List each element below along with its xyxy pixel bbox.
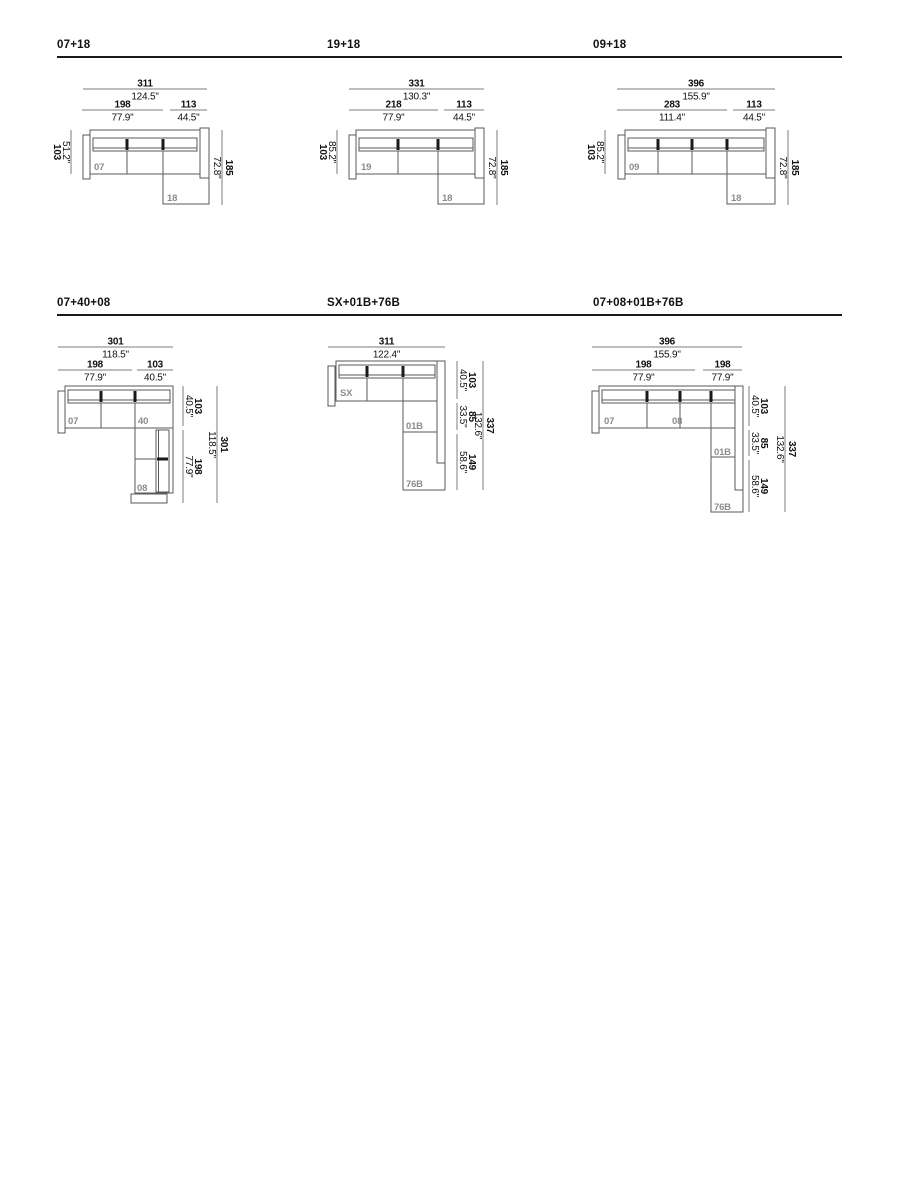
cushion-junction-mark bbox=[402, 366, 405, 377]
dim-cm-value: 311 bbox=[137, 79, 153, 90]
right-armrest bbox=[766, 128, 775, 178]
dim-inch-value: 33.5" bbox=[457, 405, 468, 428]
bottom-armrest bbox=[131, 494, 167, 503]
back-cushion-band bbox=[68, 390, 170, 403]
dim-inch-value: 118.5" bbox=[206, 431, 217, 458]
dim-inch-value: 40.5" bbox=[457, 369, 468, 392]
module-label: 40 bbox=[138, 416, 148, 427]
cushion-junction-mark bbox=[134, 391, 137, 402]
module-label: 18 bbox=[167, 193, 177, 204]
module-label: 76B bbox=[406, 479, 423, 490]
back-cushion-band bbox=[339, 365, 435, 378]
dim-inch-value: 77.9" bbox=[183, 455, 194, 478]
dim-inch-value: 77.9" bbox=[84, 373, 107, 384]
back-cushion-band bbox=[93, 138, 197, 151]
cushion-junction-mark bbox=[691, 139, 694, 150]
module-label: 18 bbox=[731, 193, 741, 204]
dim-inch-value: 72.8" bbox=[777, 156, 788, 179]
side-backrest-strip bbox=[437, 361, 445, 463]
back-cushion-band bbox=[359, 138, 473, 151]
sofa-body bbox=[356, 130, 475, 174]
cushion-junction-mark bbox=[726, 139, 729, 150]
dim-inch-value: 132.6" bbox=[774, 435, 785, 463]
cushion-junction-mark bbox=[437, 139, 440, 150]
module-label: 07 bbox=[604, 416, 614, 427]
dim-inch-value: 77.9" bbox=[382, 113, 405, 124]
right-armrest bbox=[475, 128, 484, 178]
dim-inch-value: 85.2" bbox=[594, 141, 605, 164]
module-label: 07 bbox=[94, 162, 104, 173]
sofa-diagrams-canvas: 311124.5"19877.9"11344.5"10351.2"18572.8… bbox=[0, 0, 899, 1200]
dim-inch-value: 44.5" bbox=[743, 113, 766, 124]
dim-inch-value: 58.6" bbox=[457, 451, 468, 474]
dim-cm-value: 331 bbox=[408, 79, 425, 90]
dim-cm-value: 301 bbox=[107, 337, 124, 348]
right-armrest bbox=[200, 128, 209, 178]
dim-cm-value: 198 bbox=[114, 100, 131, 111]
dim-cm-value: 113 bbox=[746, 100, 762, 111]
dim-inch-value: 111.4" bbox=[659, 113, 686, 124]
dim-inch-value: 122.4" bbox=[373, 350, 401, 361]
left-armrest bbox=[592, 391, 599, 433]
dim-inch-value: 44.5" bbox=[177, 113, 200, 124]
back-cushion-band bbox=[628, 138, 764, 151]
cushion-junction-mark bbox=[710, 391, 713, 402]
dim-inch-value: 132.6" bbox=[472, 412, 483, 440]
side-backrest-strip bbox=[735, 386, 743, 490]
dim-inch-value: 72.8" bbox=[486, 156, 497, 179]
dim-inch-value: 33.5" bbox=[749, 432, 760, 455]
dim-cm-value: 301 bbox=[218, 436, 229, 453]
dim-cm-value: 113 bbox=[456, 100, 472, 111]
module-label: 76B bbox=[714, 502, 731, 513]
module-label: 09 bbox=[629, 162, 639, 173]
cushion-junction-mark bbox=[126, 139, 129, 150]
cushion-junction-mark bbox=[157, 458, 168, 461]
dim-inch-value: 155.9" bbox=[653, 350, 681, 361]
dim-inch-value: 155.9" bbox=[682, 92, 710, 103]
dim-inch-value: 124.5" bbox=[131, 92, 159, 103]
cushion-junction-mark bbox=[366, 366, 369, 377]
dim-inch-value: 85.2" bbox=[326, 141, 337, 164]
dim-cm-value: 103 bbox=[147, 360, 164, 371]
cushion-junction-mark bbox=[646, 391, 649, 402]
sofa-body bbox=[625, 130, 766, 174]
dim-cm-value: 198 bbox=[635, 360, 652, 371]
dim-cm-value: 218 bbox=[385, 100, 402, 111]
cushion-junction-mark bbox=[162, 139, 165, 150]
cushion-junction-mark bbox=[397, 139, 400, 150]
dim-inch-value: 118.5" bbox=[102, 350, 129, 361]
dim-cm-value: 396 bbox=[659, 337, 676, 348]
module-label: 01B bbox=[714, 447, 731, 458]
dim-cm-value: 337 bbox=[786, 441, 797, 458]
cushion-junction-mark bbox=[657, 139, 660, 150]
dim-inch-value: 77.9" bbox=[111, 113, 134, 124]
dim-inch-value: 72.8" bbox=[211, 156, 222, 179]
dim-cm-value: 185 bbox=[223, 159, 234, 176]
back-cushion-band bbox=[602, 390, 735, 403]
cushion-junction-mark bbox=[100, 391, 103, 402]
dim-inch-value: 77.9" bbox=[711, 373, 734, 384]
dim-cm-value: 198 bbox=[87, 360, 104, 371]
left-armrest bbox=[83, 135, 90, 179]
dim-cm-value: 283 bbox=[664, 100, 681, 111]
left-armrest bbox=[349, 135, 356, 179]
dim-inch-value: 77.9" bbox=[632, 373, 655, 384]
dim-inch-value: 51.2" bbox=[60, 141, 71, 164]
dim-cm-value: 198 bbox=[714, 360, 731, 371]
dim-cm-value: 113 bbox=[181, 100, 197, 111]
dim-inch-value: 58.6" bbox=[749, 475, 760, 498]
module-label: 08 bbox=[137, 483, 147, 494]
dim-cm-value: 396 bbox=[688, 79, 705, 90]
side-back-cushion-band bbox=[156, 430, 169, 492]
dim-cm-value: 185 bbox=[789, 159, 800, 176]
dim-inch-value: 40.5" bbox=[183, 395, 194, 418]
module-label: SX bbox=[340, 388, 353, 399]
module-label: 08 bbox=[672, 416, 682, 427]
module-label: 18 bbox=[442, 193, 452, 204]
module-label: 19 bbox=[361, 162, 371, 173]
left-armrest bbox=[58, 391, 65, 433]
dim-cm-value: 185 bbox=[498, 159, 509, 176]
catalog-page: 07+18 19+18 09+18 07+40+08 SX+01B+76B 07… bbox=[0, 0, 899, 1200]
module-label: 07 bbox=[68, 416, 78, 427]
left-armrest bbox=[328, 366, 335, 406]
module-label: 01B bbox=[406, 421, 423, 432]
sofa-body bbox=[90, 130, 200, 174]
dim-inch-value: 44.5" bbox=[453, 113, 476, 124]
dim-inch-value: 130.3" bbox=[403, 92, 431, 103]
left-armrest bbox=[618, 135, 625, 179]
dim-cm-value: 311 bbox=[379, 337, 395, 348]
dim-inch-value: 40.5" bbox=[749, 395, 760, 418]
dim-inch-value: 40.5" bbox=[144, 373, 167, 384]
dim-cm-value: 337 bbox=[484, 417, 495, 434]
cushion-junction-mark bbox=[679, 391, 682, 402]
